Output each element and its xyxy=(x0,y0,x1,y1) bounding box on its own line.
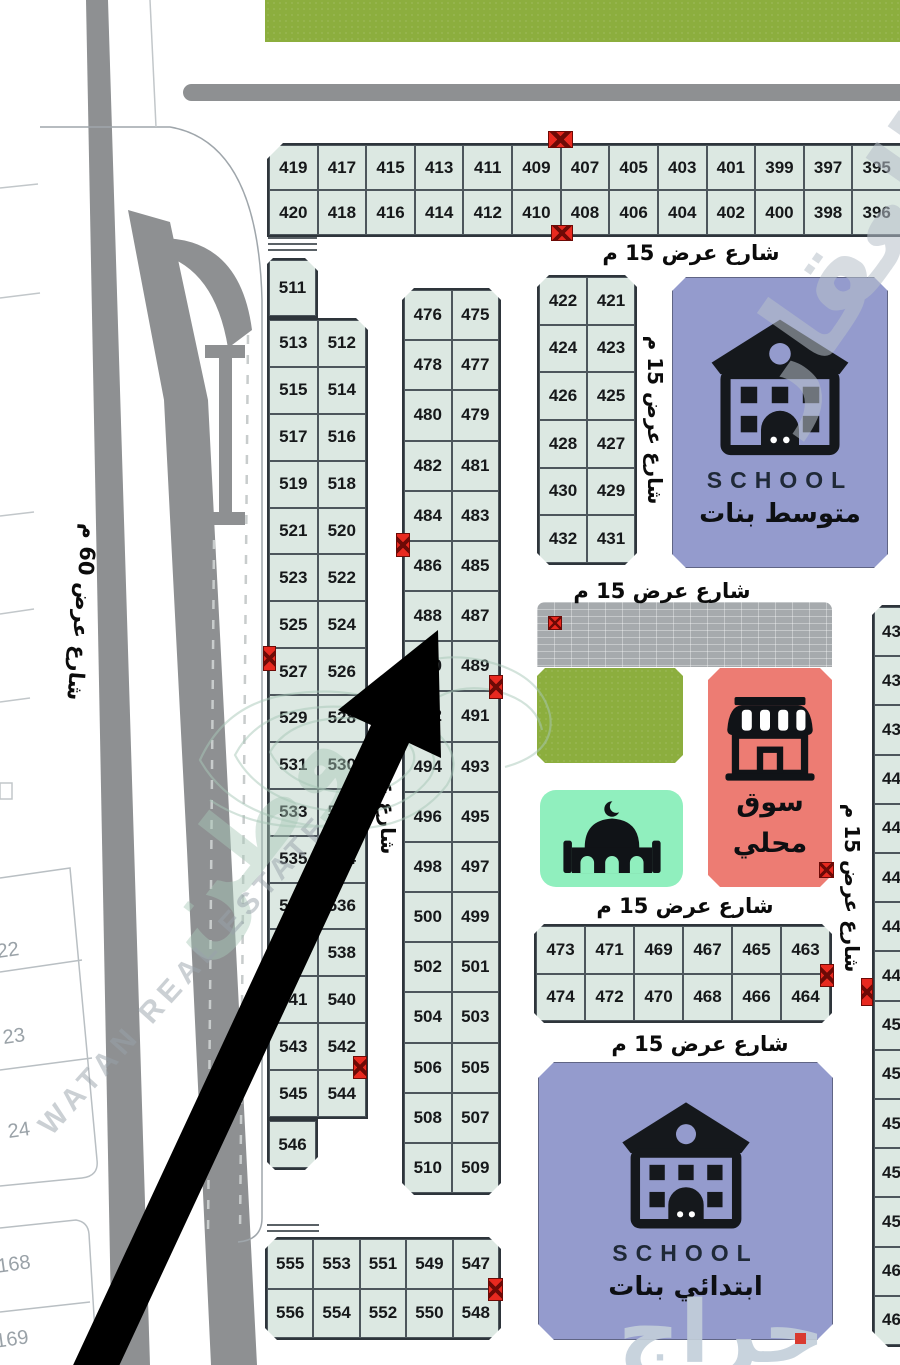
plot-cell-411: 411 xyxy=(463,145,512,190)
plot-cell-438: 438 xyxy=(874,705,900,754)
plot-cell-513: 513 xyxy=(269,320,318,367)
plot-cell-555: 555 xyxy=(267,1239,313,1289)
school-subtitle: متوسط بنات xyxy=(699,499,861,529)
market-label-line2: محلي xyxy=(733,824,808,865)
plot-block-right-column: 4344364384404424444464484504524544564584… xyxy=(872,605,900,1347)
mosque-icon xyxy=(548,798,676,879)
street-label-15m-vert-3: شارع عرض 15 م xyxy=(376,686,400,855)
school-building-icon xyxy=(704,317,856,459)
plot-cell-518: 518 xyxy=(318,461,367,508)
plot-cell-556: 556 xyxy=(267,1289,313,1339)
red-marker xyxy=(353,1056,367,1079)
plot-cell-424: 424 xyxy=(539,325,587,373)
plot-cell-551: 551 xyxy=(360,1239,406,1289)
plot-cell-494: 494 xyxy=(404,742,452,792)
plot-cell-399: 399 xyxy=(755,145,804,190)
plot-cell-536: 536 xyxy=(318,883,367,930)
paved-strip xyxy=(537,602,832,667)
plot-block-511: 511 xyxy=(267,258,318,318)
plot-cell-502: 502 xyxy=(404,942,452,992)
plot-cell-543: 543 xyxy=(269,1023,318,1070)
plot-cell-508: 508 xyxy=(404,1093,452,1143)
plot-cell-541: 541 xyxy=(269,976,318,1023)
plot-cell-452: 452 xyxy=(874,1050,900,1099)
plot-cell-417: 417 xyxy=(318,145,367,190)
plot-cell-444: 444 xyxy=(874,853,900,902)
local-market: سوق محلي xyxy=(708,668,832,887)
red-marker xyxy=(861,978,873,1006)
plot-cell-425: 425 xyxy=(587,372,635,420)
plot-cell-498: 498 xyxy=(404,842,452,892)
plot-cell-474: 474 xyxy=(536,974,585,1022)
street-label-15m-mosque: شارع عرض 15 م xyxy=(596,894,773,918)
stair-hatch-top xyxy=(268,237,317,254)
plot-cell-396: 396 xyxy=(852,190,900,235)
plot-cell-456: 456 xyxy=(874,1148,900,1197)
plot-cell-404: 404 xyxy=(658,190,707,235)
faint-plot-168: 168 xyxy=(0,1251,32,1278)
plot-cell-485: 485 xyxy=(452,541,500,591)
plot-cell-531: 531 xyxy=(269,742,318,789)
plot-cell-473: 473 xyxy=(536,926,585,974)
plot-block-463-474: 473471469467465463474472470468466464 xyxy=(534,924,832,1023)
plot-cell-406: 406 xyxy=(609,190,658,235)
street-label-15m-vert-2: شارع عرض 15 م xyxy=(840,804,864,973)
plot-cell-540: 540 xyxy=(318,976,367,1023)
road-60m-graphic xyxy=(0,0,300,1365)
plot-cell-472: 472 xyxy=(585,974,634,1022)
plot-cell-552: 552 xyxy=(360,1289,406,1339)
plot-cell-510: 510 xyxy=(404,1143,452,1193)
plot-cell-507: 507 xyxy=(452,1093,500,1143)
school-title: SCHOOL xyxy=(612,1240,758,1267)
plot-cell-487: 487 xyxy=(452,591,500,641)
plot-cell-517: 517 xyxy=(269,414,318,461)
mosque xyxy=(540,790,683,887)
plot-cell-471: 471 xyxy=(585,926,634,974)
plot-cell-533: 533 xyxy=(269,789,318,836)
plot-cell-434: 434 xyxy=(874,607,900,656)
plot-cell-545: 545 xyxy=(269,1070,318,1117)
plot-cell-511: 511 xyxy=(269,260,316,316)
plot-cell-476: 476 xyxy=(404,290,452,340)
plot-cell-401: 401 xyxy=(707,145,756,190)
plot-cell-460: 460 xyxy=(874,1247,900,1296)
plot-cell-523: 523 xyxy=(269,554,318,601)
plot-cell-514: 514 xyxy=(318,367,367,414)
plot-cell-484: 484 xyxy=(404,491,452,541)
plot-block-mid-pairs: 4764754784774804794824814844834864854884… xyxy=(402,288,501,1195)
plot-cell-486: 486 xyxy=(404,541,452,591)
plot-cell-427: 427 xyxy=(587,420,635,468)
plot-cell-501: 501 xyxy=(452,942,500,992)
plot-cell-519: 519 xyxy=(269,461,318,508)
red-marker xyxy=(488,1278,503,1301)
plot-cell-553: 553 xyxy=(313,1239,359,1289)
plot-cell-479: 479 xyxy=(452,390,500,440)
plot-cell-465: 465 xyxy=(732,926,781,974)
green-park-block xyxy=(537,668,683,763)
plot-cell-415: 415 xyxy=(366,145,415,190)
plot-cell-554: 554 xyxy=(313,1289,359,1339)
plot-cell-400: 400 xyxy=(755,190,804,235)
plot-cell-516: 516 xyxy=(318,414,367,461)
plot-cell-534: 534 xyxy=(318,836,367,883)
plot-cell-524: 524 xyxy=(318,601,367,648)
plot-map-canvas: 4194174154134114094074054034013993973954… xyxy=(0,0,900,1365)
road-median-bar xyxy=(183,84,900,101)
plot-cell-495: 495 xyxy=(452,792,500,842)
plot-cell-432: 432 xyxy=(539,515,587,563)
plot-cell-458: 458 xyxy=(874,1197,900,1246)
plot-cell-402: 402 xyxy=(707,190,756,235)
stair-hatch-bottom xyxy=(267,1224,319,1236)
plot-cell-539: 539 xyxy=(269,929,318,976)
plot-block-547-556: 555553551549547556554552550548 xyxy=(265,1237,501,1340)
red-marker xyxy=(489,675,503,699)
market-label-line1: سوق xyxy=(736,783,804,824)
plot-cell-478: 478 xyxy=(404,340,452,390)
plot-cell-450: 450 xyxy=(874,1001,900,1050)
plot-cell-506: 506 xyxy=(404,1043,452,1093)
plot-cell-532: 532 xyxy=(318,789,367,836)
red-marker xyxy=(820,964,834,987)
plot-cell-526: 526 xyxy=(318,648,367,695)
plot-cell-500: 500 xyxy=(404,892,452,942)
faint-plot-169: 169 xyxy=(0,1326,30,1353)
plot-cell-520: 520 xyxy=(318,508,367,555)
plot-cell-407: 407 xyxy=(561,145,610,190)
plot-cell-428: 428 xyxy=(539,420,587,468)
plot-cell-416: 416 xyxy=(366,190,415,235)
faint-road-lines xyxy=(0,184,40,799)
street-label-15m-lower: شارع عرض 15 م xyxy=(611,1032,788,1056)
plot-cell-405: 405 xyxy=(609,145,658,190)
faint-plot-22: 22 xyxy=(0,938,21,964)
plot-cell-528: 528 xyxy=(318,695,367,742)
street-label-15m-mid: شارع عرض 15 م xyxy=(573,579,750,603)
plot-cell-419: 419 xyxy=(269,145,318,190)
plot-cell-420: 420 xyxy=(269,190,318,235)
plot-cell-477: 477 xyxy=(452,340,500,390)
plot-cell-475: 475 xyxy=(452,290,500,340)
plot-cell-440: 440 xyxy=(874,755,900,804)
plot-cell-483: 483 xyxy=(452,491,500,541)
school-subtitle: ابتدائي بنات xyxy=(608,1272,763,1302)
plot-cell-482: 482 xyxy=(404,441,452,491)
plot-cell-538: 538 xyxy=(318,929,367,976)
plot-cell-448: 448 xyxy=(874,951,900,1000)
green-strip-top xyxy=(265,0,900,42)
haraj-red-dot xyxy=(795,1333,806,1344)
plot-cell-395: 395 xyxy=(852,145,900,190)
plot-cell-488: 488 xyxy=(404,591,452,641)
plot-cell-409: 409 xyxy=(512,145,561,190)
plot-cell-493: 493 xyxy=(452,742,500,792)
plot-cell-512: 512 xyxy=(318,320,367,367)
plot-cell-499: 499 xyxy=(452,892,500,942)
red-marker xyxy=(548,616,562,630)
plot-cell-431: 431 xyxy=(587,515,635,563)
school-elementary-girls: SCHOOL ابتدائي بنات xyxy=(538,1062,833,1340)
plot-cell-412: 412 xyxy=(463,190,512,235)
red-marker xyxy=(551,225,573,241)
market-store-icon xyxy=(720,691,820,783)
plot-cell-497: 497 xyxy=(452,842,500,892)
plot-cell-529: 529 xyxy=(269,695,318,742)
plot-cell-537: 537 xyxy=(269,883,318,930)
plot-cell-403: 403 xyxy=(658,145,707,190)
plot-block-546: 546 xyxy=(267,1119,318,1170)
plot-cell-549: 549 xyxy=(406,1239,452,1289)
red-marker xyxy=(548,131,573,148)
plot-cell-470: 470 xyxy=(634,974,683,1022)
plot-cell-522: 522 xyxy=(318,554,367,601)
street-label-60m: شارع عرض 60 م xyxy=(62,523,101,702)
plot-cell-535: 535 xyxy=(269,836,318,883)
plot-cell-413: 413 xyxy=(415,145,464,190)
plot-block-top-rows: 4194174154134114094074054034013993973954… xyxy=(267,143,900,237)
plot-cell-521: 521 xyxy=(269,508,318,555)
plot-block-421-432: 422421424423426425428427430429432431 xyxy=(537,275,637,565)
plot-cell-504: 504 xyxy=(404,992,452,1042)
plot-cell-429: 429 xyxy=(587,468,635,516)
plot-cell-496: 496 xyxy=(404,792,452,842)
plot-cell-530: 530 xyxy=(318,742,367,789)
street-label-15m-top: شارع عرض 15 م xyxy=(602,241,779,265)
plot-cell-442: 442 xyxy=(874,804,900,853)
plot-cell-550: 550 xyxy=(406,1289,452,1339)
plot-cell-505: 505 xyxy=(452,1043,500,1093)
plot-cell-436: 436 xyxy=(874,656,900,705)
plot-cell-422: 422 xyxy=(539,277,587,325)
plot-cell-414: 414 xyxy=(415,190,464,235)
plot-cell-492: 492 xyxy=(404,691,452,741)
faint-plot-23: 23 xyxy=(1,1024,26,1050)
plot-cell-454: 454 xyxy=(874,1099,900,1148)
street-label-15m-vert-1: شارع عرض 15 م xyxy=(643,336,667,505)
plot-cell-430: 430 xyxy=(539,468,587,516)
plot-cell-515: 515 xyxy=(269,367,318,414)
plot-cell-418: 418 xyxy=(318,190,367,235)
plot-cell-509: 509 xyxy=(452,1143,500,1193)
plot-block-left-pairs: 5135125155145175165195185215205235225255… xyxy=(267,318,368,1119)
red-marker xyxy=(819,862,834,878)
plot-cell-398: 398 xyxy=(804,190,853,235)
plot-cell-467: 467 xyxy=(683,926,732,974)
plot-cell-469: 469 xyxy=(634,926,683,974)
plot-cell-421: 421 xyxy=(587,277,635,325)
plot-cell-503: 503 xyxy=(452,992,500,1042)
plot-cell-426: 426 xyxy=(539,372,587,420)
plot-cell-480: 480 xyxy=(404,390,452,440)
plot-cell-423: 423 xyxy=(587,325,635,373)
red-marker xyxy=(263,646,276,671)
school-title: SCHOOL xyxy=(707,467,853,494)
plot-cell-446: 446 xyxy=(874,902,900,951)
plot-cell-462: 462 xyxy=(874,1296,900,1345)
school-building-icon xyxy=(615,1100,757,1232)
red-marker xyxy=(396,533,410,557)
plot-cell-397: 397 xyxy=(804,145,853,190)
plot-cell-546: 546 xyxy=(269,1121,316,1168)
plot-cell-466: 466 xyxy=(732,974,781,1022)
plot-cell-525: 525 xyxy=(269,601,318,648)
plot-cell-490: 490 xyxy=(404,641,452,691)
plot-cell-468: 468 xyxy=(683,974,732,1022)
school-middle-girls: SCHOOL متوسط بنات xyxy=(672,277,888,568)
plot-cell-527: 527 xyxy=(269,648,318,695)
plot-cell-481: 481 xyxy=(452,441,500,491)
faint-plot-24: 24 xyxy=(6,1118,31,1144)
